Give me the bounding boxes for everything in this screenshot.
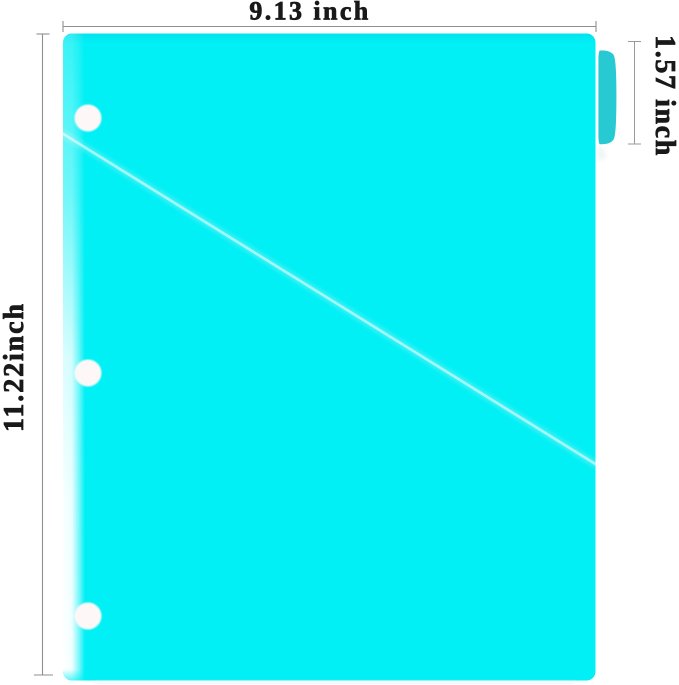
svg-text:11.22inch: 11.22inch bbox=[0, 302, 30, 432]
svg-text:9.13 inch: 9.13 inch bbox=[249, 0, 370, 26]
svg-text:1.57 inch: 1.57 inch bbox=[649, 35, 679, 157]
